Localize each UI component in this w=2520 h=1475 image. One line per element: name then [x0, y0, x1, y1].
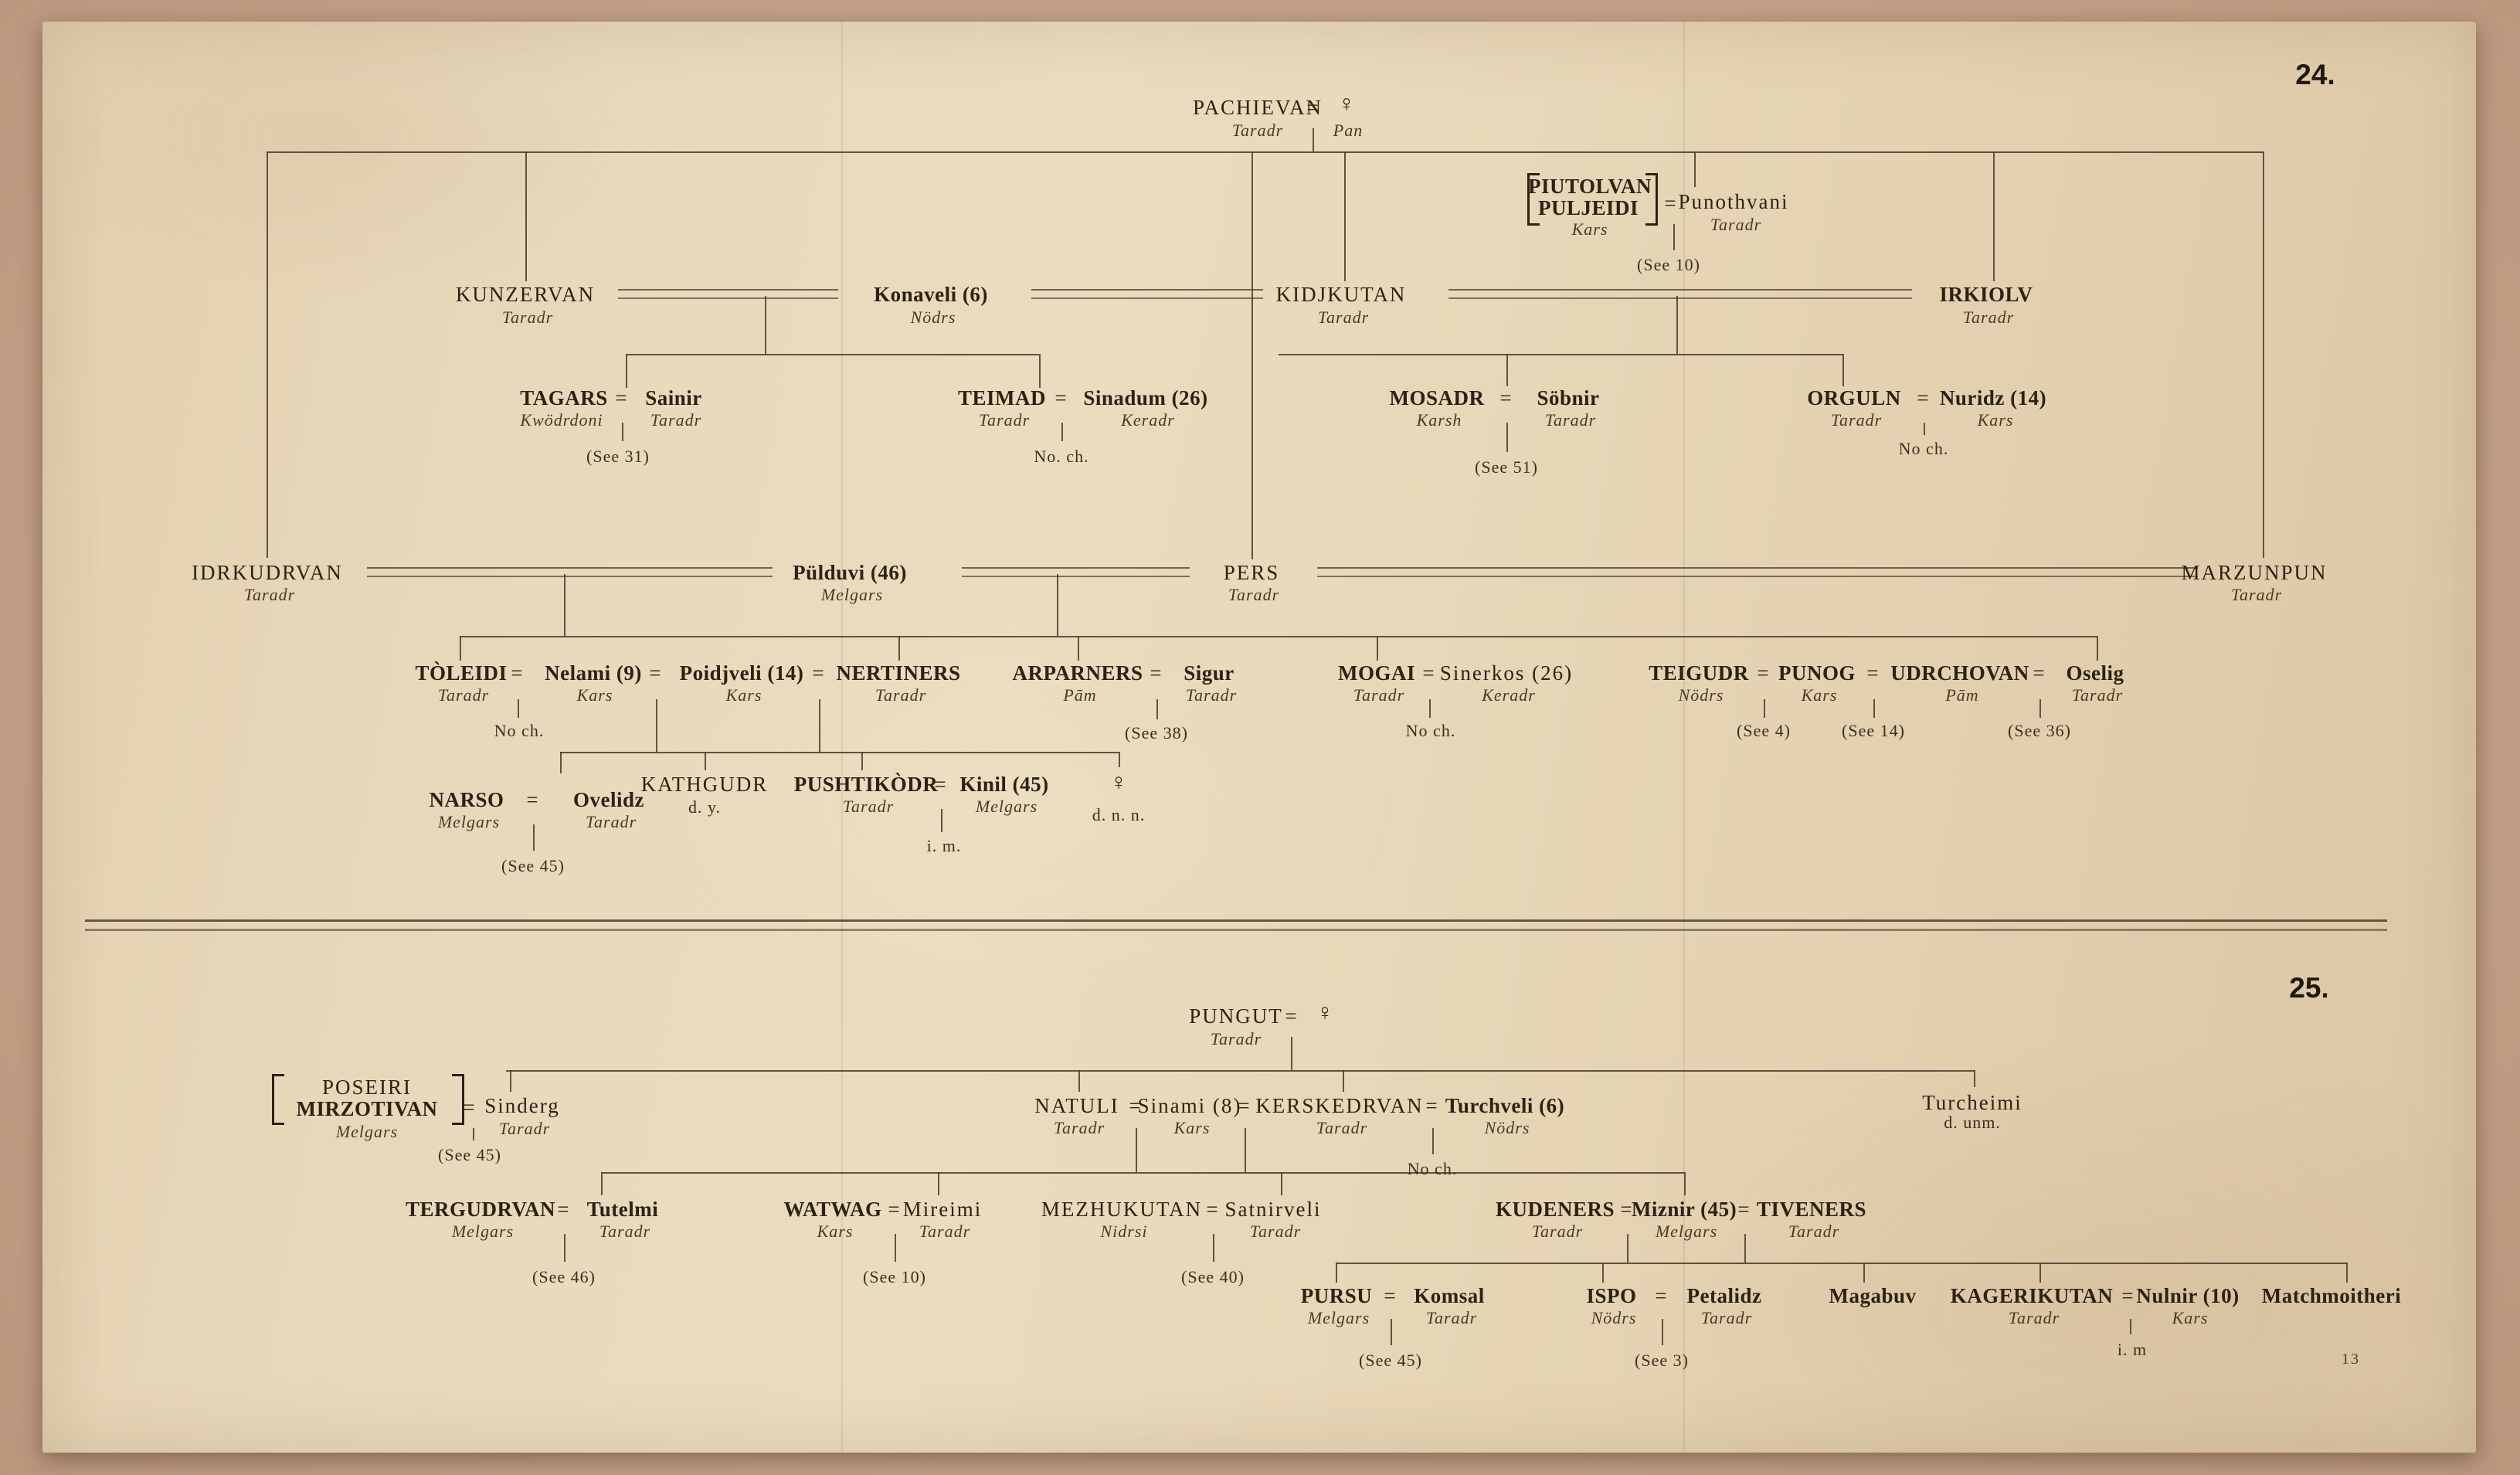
descent-line	[1336, 1263, 1337, 1283]
clan-label: Melgars	[976, 797, 1038, 817]
annotation: (See 10)	[863, 1267, 926, 1287]
descent-line	[2039, 1263, 2041, 1283]
marriage-equals: =	[615, 386, 628, 410]
female-symbol: ♀	[1110, 770, 1128, 796]
marriage-line	[618, 289, 838, 299]
person-name: MOSADR	[1390, 386, 1485, 410]
marriage-equals: =	[1055, 386, 1068, 410]
marriage-equals: =	[1866, 661, 1880, 685]
marriage-equals: =	[1757, 661, 1770, 685]
clan-label: Taradr	[244, 585, 295, 605]
marriage-equals: =	[812, 661, 825, 685]
marriage-equals: =	[1306, 96, 1319, 120]
female-symbol: ♀	[1316, 1000, 1334, 1026]
descent-line	[1676, 296, 1678, 354]
clan-label: Nödrs	[911, 308, 956, 328]
person-name: KUDENERS	[1496, 1198, 1615, 1222]
clan-label: Taradr	[1710, 215, 1761, 235]
annotation: No ch.	[1408, 1159, 1458, 1179]
clan-label: Pām	[1945, 685, 1978, 705]
marriage-equals: =	[888, 1198, 901, 1222]
person-name: Magabuv	[1829, 1284, 1916, 1308]
clan-label: Taradr	[1186, 685, 1237, 705]
person-name: Konaveli (6)	[874, 283, 988, 307]
bracket-mark	[272, 1074, 284, 1125]
marriage-equals: =	[463, 1096, 476, 1120]
clan-label: Melgars	[1308, 1308, 1370, 1328]
descent-line	[533, 824, 535, 851]
person-name: IRKIOLV	[1939, 283, 2033, 307]
person-name: Satnirveli	[1225, 1198, 1322, 1222]
clan-label: Kars	[1978, 410, 2014, 430]
descent-line	[1974, 1070, 1975, 1087]
sibling-line	[267, 151, 2264, 153]
person-name: Mireimi	[903, 1198, 983, 1222]
clan-label: Nödrs	[1679, 685, 1724, 705]
person-name: Turchveli (6)	[1445, 1094, 1564, 1118]
annotation: (See 14)	[1842, 721, 1905, 741]
marriage-line	[1031, 289, 1263, 299]
marriage-equals: =	[1384, 1284, 1397, 1308]
sibling-line	[626, 354, 1039, 355]
descent-line	[1078, 1070, 1080, 1092]
descent-line	[1119, 752, 1120, 767]
person-name: NARSO	[429, 788, 504, 812]
person-name: Sinerkos (26)	[1440, 661, 1573, 685]
descent-line	[626, 354, 627, 388]
marriage-equals: =	[1150, 661, 1163, 685]
descent-line	[895, 1234, 896, 1262]
person-name: Petalidz	[1687, 1284, 1762, 1308]
person-name: IDRKUDRVAN	[192, 561, 343, 585]
descent-line	[1291, 1037, 1292, 1070]
person-name: KERSKEDRVAN	[1255, 1094, 1423, 1118]
clan-label: Pan	[1333, 121, 1363, 141]
clan-label: Taradr	[438, 685, 489, 705]
person-name: TEIGUDR	[1649, 661, 1749, 685]
person-name: PUNGUT	[1189, 1004, 1283, 1028]
annotation: (See 51)	[1475, 457, 1538, 478]
descent-line	[1673, 224, 1675, 250]
clan-label: Taradr	[843, 797, 894, 817]
descent-line	[938, 1172, 939, 1195]
clan-label: Taradr	[599, 1222, 650, 1242]
sibling-line	[460, 636, 2097, 637]
marriage-equals: =	[1664, 192, 1677, 216]
clan-label: Melgars	[1656, 1222, 1717, 1242]
descent-line	[1924, 423, 1925, 435]
clan-label: Kars	[2172, 1308, 2209, 1328]
sibling-line	[601, 1172, 1684, 1174]
person-name: Turcheimi	[1922, 1091, 2022, 1115]
person-name: Söbnir	[1537, 386, 1599, 410]
person-name: POSEIRI	[322, 1076, 412, 1099]
annotation: No ch.	[1899, 439, 1949, 459]
person-name: PUSHTIKÒDR	[794, 773, 939, 797]
annotation: (See 45)	[501, 856, 565, 876]
sibling-line	[560, 752, 1119, 753]
annotation: i. m.	[927, 836, 962, 856]
marriage-equals: =	[1238, 1094, 1251, 1118]
plate-number-24: 24.	[2295, 59, 2335, 91]
person-name: PIUTOLVAN	[1528, 175, 1652, 199]
person-name: Pülduvi (46)	[793, 561, 907, 585]
person-name: Matchmoitheri	[2262, 1284, 2401, 1308]
person-name: PUNOG	[1778, 661, 1856, 685]
female-symbol: ♀	[1338, 91, 1356, 117]
clan-label: Taradr	[2072, 685, 2123, 705]
marriage-equals: =	[557, 1198, 570, 1222]
person-name: Sigur	[1184, 661, 1235, 685]
marriage-line	[1317, 567, 2198, 577]
clan-label: Taradr	[1963, 308, 2014, 328]
annotation: d. unm.	[1944, 1113, 2001, 1133]
descent-line	[1213, 1234, 1214, 1262]
marriage-equals: =	[526, 788, 539, 812]
annotation: (See 40)	[1181, 1267, 1245, 1287]
descent-line	[1391, 1319, 1392, 1345]
page-number: 13	[2342, 1351, 2360, 1368]
descent-line	[2130, 1319, 2131, 1334]
descent-line	[601, 1172, 603, 1195]
clan-label: Taradr	[1545, 410, 1596, 430]
person-name: ORGULN	[1807, 386, 1901, 410]
plate-number-25: 25.	[2289, 972, 2328, 1004]
person-name: Nuridz (14)	[1940, 386, 2046, 410]
annotation: (See 38)	[1125, 723, 1188, 743]
person-name: KAGERIKUTAN	[1951, 1284, 2114, 1308]
descent-line	[1993, 151, 1995, 281]
descent-line	[564, 1234, 565, 1262]
marriage-equals: =	[1425, 1094, 1438, 1118]
person-name: KIDJKUTAN	[1276, 283, 1407, 307]
clan-label: Nödrs	[1591, 1308, 1637, 1328]
clan-label: Taradr	[1701, 1308, 1752, 1328]
person-name: NERTINERS	[836, 661, 960, 685]
descent-line	[1684, 1172, 1686, 1195]
annotation: No ch.	[494, 721, 545, 741]
clan-label: Taradr	[875, 685, 926, 705]
descent-line	[473, 1128, 474, 1140]
clan-label: Kars	[817, 1222, 854, 1242]
clan-label: Kars	[577, 685, 613, 705]
annotation: (See 10)	[1637, 255, 1700, 275]
annotation: (See 45)	[438, 1145, 501, 1165]
descent-line	[518, 699, 519, 718]
person-name: PERS	[1224, 561, 1280, 585]
annotation: (See 45)	[1359, 1351, 1422, 1371]
annotation: i. m	[2118, 1340, 2147, 1360]
descent-line	[2097, 636, 2098, 661]
marriage-line	[1448, 289, 1912, 299]
marriage-equals: =	[1655, 1284, 1668, 1308]
marriage-equals: =	[649, 661, 662, 685]
clan-label: Melgars	[336, 1122, 398, 1142]
clan-label: Taradr	[1054, 1118, 1105, 1138]
descent-line	[861, 752, 863, 770]
descent-line	[1057, 574, 1058, 636]
annotation: No. ch.	[1034, 447, 1088, 467]
annotation: No ch.	[1406, 721, 1456, 741]
descent-line	[1156, 699, 1158, 719]
descent-line	[1432, 1128, 1434, 1154]
descent-line	[1506, 354, 1508, 386]
descent-line	[1873, 699, 1875, 718]
sibling-line	[506, 1070, 1975, 1072]
clan-label: Kars	[1572, 219, 1608, 240]
marriage-equals: =	[1737, 1198, 1751, 1222]
person-name: Oselig	[2067, 661, 2124, 685]
clan-label: Taradr	[586, 812, 637, 832]
person-name: PULJEIDI	[1538, 196, 1639, 220]
sibling-line	[1279, 354, 1842, 355]
marriage-equals: =	[511, 661, 524, 685]
person-name: WATWAG	[783, 1198, 881, 1222]
descent-line	[1136, 1128, 1137, 1172]
clan-label: Nidrsi	[1100, 1222, 1147, 1242]
descent-line	[941, 809, 942, 832]
marriage-equals: =	[1499, 386, 1513, 410]
clan-label: Kars	[1174, 1118, 1211, 1138]
marriage-line	[962, 567, 1190, 577]
clan-label: Karsh	[1417, 410, 1462, 430]
descent-line	[1627, 1234, 1628, 1263]
person-name: TEIMAD	[958, 386, 1046, 410]
person-name: Sinderg	[484, 1094, 560, 1118]
person-name: Poidjveli (14)	[680, 661, 804, 685]
sibling-line	[1336, 1263, 2347, 1264]
descent-line	[560, 752, 562, 773]
person-name: KUNZERVAN	[456, 283, 595, 307]
descent-line	[2346, 1263, 2348, 1283]
clan-label: Kwödrdoni	[520, 410, 603, 430]
descent-line	[1602, 1263, 1604, 1283]
clan-label: Melgars	[821, 585, 883, 605]
descent-line	[2039, 699, 2041, 718]
person-name: TIVENERS	[1757, 1198, 1866, 1222]
descent-line	[622, 423, 623, 441]
clan-label: Keradr	[1482, 685, 1536, 705]
descent-line	[1863, 1263, 1865, 1283]
descent-line	[525, 151, 527, 281]
descent-line	[2263, 151, 2264, 558]
descent-line	[1744, 1234, 1746, 1263]
clan-label: Kars	[1802, 685, 1838, 705]
clan-label: Nödrs	[1485, 1118, 1530, 1138]
descent-line	[1039, 354, 1041, 388]
person-name: ISPO	[1586, 1284, 1636, 1308]
descent-line	[1313, 128, 1314, 151]
person-name: MARZUNPUN	[2181, 561, 2327, 585]
marriage-equals: =	[1206, 1198, 1219, 1222]
clan-label: Taradr	[1232, 121, 1283, 141]
annotation: (See 36)	[2008, 721, 2071, 741]
descent-line	[1245, 1128, 1246, 1172]
person-name: ARPARNERS	[1012, 661, 1143, 685]
descent-line	[1281, 1172, 1282, 1195]
person-name: Komsal	[1414, 1284, 1485, 1308]
person-name: Tutelmi	[587, 1198, 659, 1222]
descent-line	[1343, 1070, 1344, 1092]
clan-label: Pām	[1063, 685, 1096, 705]
annotation: (See 3)	[1635, 1351, 1689, 1371]
clan-label: Taradr	[1211, 1029, 1262, 1049]
person-name: Sinadum (26)	[1083, 386, 1207, 410]
clan-label: Taradr	[499, 1119, 550, 1139]
person-name: TÒLEIDI	[415, 661, 507, 685]
person-name: Miznir (45)	[1632, 1198, 1737, 1222]
clan-label: Taradr	[1788, 1222, 1839, 1242]
marriage-equals: =	[2121, 1284, 2135, 1308]
descent-line	[564, 574, 565, 636]
person-name: KATHGUDR	[641, 773, 769, 797]
person-name: Nelami (9)	[545, 661, 642, 685]
descent-line	[1344, 151, 1346, 281]
clan-label: Taradr	[1228, 585, 1279, 605]
descent-line	[705, 752, 706, 770]
person-name: Nulnir (10)	[2136, 1284, 2239, 1308]
descent-line	[1078, 636, 1079, 661]
descent-line	[1764, 699, 1765, 718]
descent-line	[510, 1070, 511, 1092]
descent-line	[1252, 151, 1253, 559]
clan-label: Taradr	[502, 308, 553, 328]
descent-line	[1842, 354, 1844, 386]
clan-label: Taradr	[1316, 1118, 1367, 1138]
descent-line	[1061, 423, 1063, 441]
descent-line	[1429, 699, 1431, 718]
clan-label: Melgars	[438, 812, 500, 832]
annotation: d. n. n.	[1092, 805, 1146, 825]
descent-line	[1662, 1319, 1663, 1345]
descent-line	[1377, 636, 1378, 661]
clan-label: Melgars	[452, 1222, 514, 1242]
clan-label: Taradr	[919, 1222, 970, 1242]
clan-label: Kars	[726, 685, 762, 705]
clan-label: Taradr	[979, 410, 1030, 430]
marriage-equals: =	[2033, 661, 2046, 685]
marriage-line	[367, 567, 773, 577]
person-name: TAGARS	[520, 386, 608, 410]
descent-line	[765, 296, 766, 354]
clan-label: Taradr	[1426, 1308, 1477, 1328]
clan-label: Taradr	[650, 410, 701, 430]
clan-label: Keradr	[1121, 410, 1175, 430]
person-name: PACHIEVAN	[1193, 96, 1323, 120]
marriage-equals: =	[1422, 661, 1435, 685]
descent-line	[460, 636, 461, 661]
descent-line	[267, 151, 268, 558]
descent-line	[898, 636, 900, 661]
person-name: PURSU	[1301, 1284, 1373, 1308]
person-name: MOGAI	[1338, 661, 1415, 685]
person-name: Punothvani	[1678, 190, 1788, 214]
person-name: Ovelidz	[573, 788, 644, 812]
person-name: TERGUDRVAN	[406, 1198, 555, 1222]
descent-line	[819, 699, 820, 752]
person-name: MEZHUKUTAN	[1041, 1198, 1202, 1222]
clan-label: Taradr	[1532, 1222, 1583, 1242]
person-name: Sainir	[645, 386, 702, 410]
clan-label: Taradr	[1318, 308, 1369, 328]
annotation: (See 46)	[532, 1267, 596, 1287]
annotation: (See 31)	[586, 447, 650, 467]
clan-label: Taradr	[1831, 410, 1882, 430]
person-name: UDRCHOVAN	[1890, 661, 2029, 685]
marriage-equals: =	[1285, 1004, 1298, 1028]
descent-line	[1694, 151, 1696, 187]
marriage-equals: =	[1917, 386, 1930, 410]
descent-line	[1506, 423, 1508, 452]
person-name: Kinil (45)	[959, 773, 1048, 797]
clan-label: Taradr	[2009, 1308, 2060, 1328]
marriage-equals: =	[934, 773, 947, 797]
person-name: Sinami (8)	[1138, 1094, 1242, 1118]
clan-label: Taradr	[2231, 585, 2282, 605]
person-name: NATULI	[1034, 1094, 1119, 1118]
clan-label: Taradr	[1353, 685, 1404, 705]
annotation: (See 4)	[1737, 721, 1791, 741]
section-divider	[85, 919, 2387, 931]
descent-line	[656, 699, 657, 752]
person-name: MIRZOTIVAN	[296, 1097, 437, 1121]
clan-label: Taradr	[1250, 1222, 1301, 1242]
annotation: d. y.	[688, 797, 721, 817]
